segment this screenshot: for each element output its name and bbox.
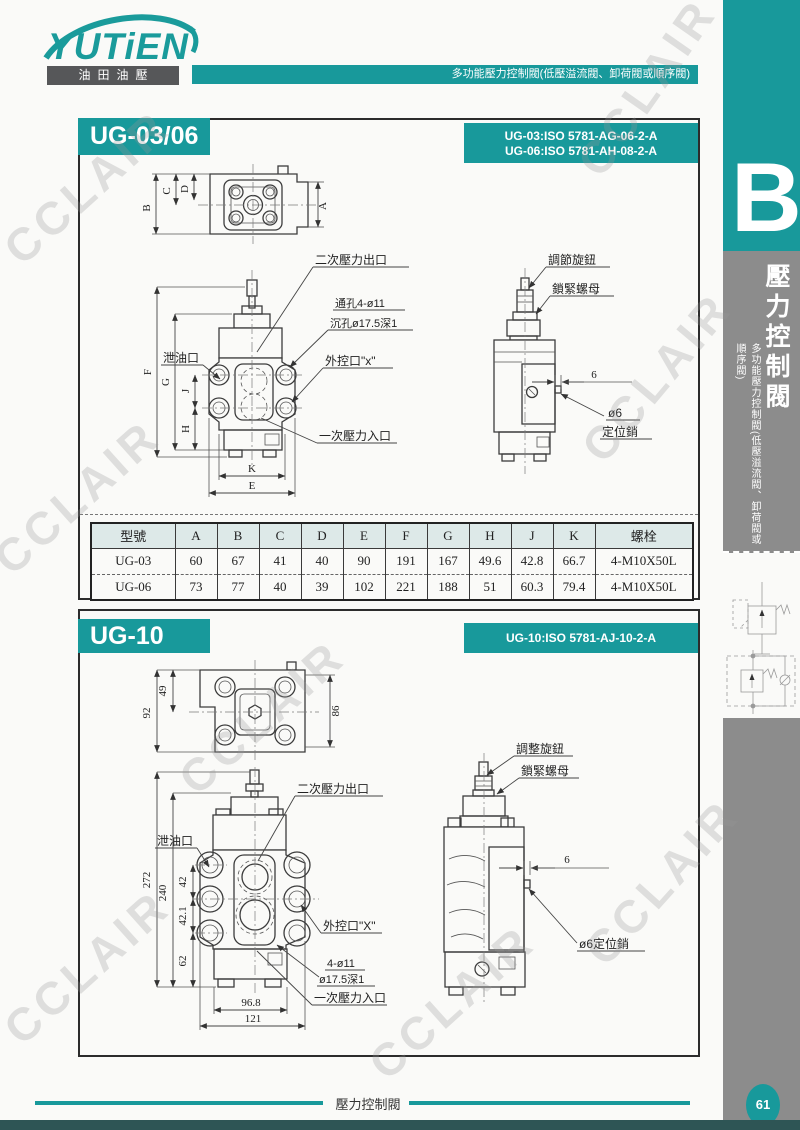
dim-240: 240 — [157, 884, 169, 901]
cell: 188 — [427, 574, 469, 600]
dim-pin-offset: 6 — [591, 369, 597, 381]
brand-logo: YUTiEN — [48, 26, 189, 68]
label-locating-pin: ø6定位銷 — [579, 936, 629, 951]
iso-code-box-1: UG-03:ISO 5781-AG-06-2-A UG-06:ISO 5781-… — [464, 123, 698, 163]
col-header: G — [427, 523, 469, 548]
label-primary-inlet: 一次壓力入口 — [319, 429, 391, 443]
cell: 51 — [469, 574, 511, 600]
dim-272: 272 — [141, 872, 153, 889]
sidebar-title-vertical: 壓力控制閥 — [758, 263, 794, 413]
cell: 60.3 — [511, 574, 553, 600]
col-header: J — [511, 523, 553, 548]
iso-code-ug10: UG-10:ISO 5781-AJ-10-2-A — [464, 631, 698, 645]
cell: 79.4 — [553, 574, 595, 600]
dim-86: 86 — [330, 705, 342, 717]
footer-title: 壓力控制閥 — [330, 1094, 406, 1113]
label-primary-inlet: 一次壓力入口 — [314, 991, 386, 1005]
ug03-front-body — [202, 270, 305, 465]
col-header: 螺栓 — [595, 523, 693, 548]
label-pilot-port: 外控口"X" — [323, 919, 376, 933]
dimension-table: 型號 A B C D E F G H J K 螺栓 UG-03 60 67 41… — [90, 522, 694, 601]
dim-pin-offset: 6 — [564, 854, 570, 866]
dim-62: 62 — [177, 956, 189, 967]
dim-A: A — [317, 202, 329, 210]
section-title-ug-10: UG-10 — [78, 619, 210, 653]
cell: 40 — [259, 574, 301, 600]
cell: 39 — [301, 574, 343, 600]
sidebar-filler-gray — [723, 718, 800, 1130]
sidebar-section-letter: B — [731, 148, 800, 246]
col-header: F — [385, 523, 427, 548]
page-banner: 多功能壓力控制閥(低壓溢流閥、卸荷閥或順序閥) — [192, 65, 698, 84]
cell: 77 — [217, 574, 259, 600]
drawing-ug03-front-view: 二次壓力出口 通孔4-ø11 沉孔ø17.5深1 外控口"x" 泄油口 一次壓力… — [147, 250, 462, 515]
cell: UG-06 — [91, 574, 175, 600]
drawing-ug10-side-view: 調整旋鈕 鎖緊螺母 6 ø6定位銷 — [427, 737, 692, 1027]
hydraulic-symbol-pilot-valve-icon — [723, 648, 799, 716]
label-counterbore: ø17.5深1 — [319, 973, 364, 986]
ug03-top-body — [198, 164, 318, 244]
table-row-ug03: UG-03 60 67 41 40 90 191 167 49.6 42.8 6… — [91, 548, 693, 574]
label-lock-nut: 鎖緊螺母 — [521, 763, 569, 778]
cell: 191 — [385, 548, 427, 574]
table-top-divider — [80, 514, 698, 515]
cell: 67 — [217, 548, 259, 574]
col-header: D — [301, 523, 343, 548]
drawing-ug10-front-view: 二次壓力出口 泄油口 外控口"X" 4-ø11 ø17.5深1 一次壓力入口 — [137, 765, 407, 1055]
label-secondary-outlet: 二次壓力出口 — [315, 253, 387, 267]
catalog-page: YUTiEN 油田油壓 多功能壓力控制閥(低壓溢流閥、卸荷閥或順序閥) B 壓力… — [0, 0, 800, 1130]
col-header: 型號 — [91, 523, 175, 548]
label-pin-diameter: ø6 — [608, 406, 622, 420]
sidebar-tab-gray: 壓力控制閥 多功能壓力控制閥(低壓溢流閥、卸荷閥或順序閥) — [723, 251, 800, 553]
cell: 42.8 — [511, 548, 553, 574]
col-header: B — [217, 523, 259, 548]
section-title-ug-03-06: UG-03/06 — [78, 118, 210, 155]
cell: 60 — [175, 548, 217, 574]
dim-B: B — [141, 204, 153, 211]
label-lock-nut: 鎖緊螺母 — [552, 281, 600, 296]
dim-92: 92 — [141, 708, 153, 719]
cell: 102 — [343, 574, 385, 600]
col-header: K — [553, 523, 595, 548]
iso-code-box-2: UG-10:ISO 5781-AJ-10-2-A — [464, 623, 698, 653]
ug10-side-body — [444, 753, 530, 1005]
footer-rule-right — [409, 1101, 690, 1105]
dim-42: 42 — [177, 877, 189, 888]
dim-121: 121 — [245, 1013, 262, 1025]
dim-F: F — [142, 369, 154, 375]
col-header: H — [469, 523, 511, 548]
label-adjust-knob: 調整旋鈕 — [516, 741, 564, 756]
sidebar-subtitle-vertical: 多功能壓力控制閥(低壓溢流閥、卸荷閥或順序閥) — [732, 343, 762, 548]
dim-49: 49 — [157, 685, 169, 697]
dim-D: D — [179, 185, 191, 193]
section-ug-10: UG-10 UG-10:ISO 5781-AJ-10-2-A — [78, 609, 700, 1057]
drawing-ug10-top-view: 92 49 86 — [137, 657, 367, 782]
dim-J: J — [180, 388, 192, 393]
iso-code-ug06: UG-06:ISO 5781-AH-08-2-A — [464, 144, 698, 158]
dim-K: K — [248, 463, 256, 475]
label-locating-pin: 定位銷 — [602, 424, 638, 439]
cell: UG-03 — [91, 548, 175, 574]
dim-C: C — [161, 187, 173, 194]
table-header-row: 型號 A B C D E F G H J K 螺栓 — [91, 523, 693, 548]
cell: 66.7 — [553, 548, 595, 574]
col-header: A — [175, 523, 217, 548]
label-drain-port: 泄油口 — [157, 834, 193, 848]
label-secondary-outlet: 二次壓力出口 — [297, 782, 369, 796]
label-adjust-knob: 調節旋鈕 — [548, 252, 596, 267]
dim-H: H — [180, 425, 192, 433]
ug10-top-body — [189, 660, 319, 762]
iso-code-ug03: UG-03:ISO 5781-AG-06-2-A — [464, 129, 698, 143]
cell: 167 — [427, 548, 469, 574]
dim-G: G — [160, 378, 172, 386]
cell: 41 — [259, 548, 301, 574]
cell: 40 — [301, 548, 343, 574]
bottom-strip — [0, 1120, 800, 1130]
drawing-ug03-side-view: 調節旋鈕 鎖緊螺母 6 ø6 定位銷 — [482, 252, 702, 492]
table-row-ug06: UG-06 73 77 40 39 102 221 188 51 60.3 79… — [91, 574, 693, 600]
dim-E: E — [249, 480, 256, 492]
dim-42-1: 42.1 — [177, 906, 189, 925]
col-header: C — [259, 523, 301, 548]
label-drain-port: 泄油口 — [163, 351, 199, 365]
ug10-front-body — [192, 767, 319, 995]
cell: 4-M10X50L — [595, 548, 693, 574]
section-ug-03-06: UG-03/06 UG-03:ISO 5781-AG-06-2-A UG-06:… — [78, 118, 700, 600]
label-pilot-port: 外控口"x" — [325, 354, 376, 368]
label-through-hole: 通孔4-ø11 — [335, 297, 385, 310]
sidebar-tab-teal: B — [723, 0, 800, 251]
cell: 221 — [385, 574, 427, 600]
cell: 73 — [175, 574, 217, 600]
dim-96-8: 96.8 — [241, 997, 261, 1009]
ug03-side-body — [494, 268, 561, 474]
footer-rule-left — [35, 1101, 323, 1105]
cell: 4-M10X50L — [595, 574, 693, 600]
label-counterbore: 沉孔ø17.5深1 — [330, 317, 397, 330]
label-bolt-holes: 4-ø11 — [327, 958, 355, 970]
brand-logo-subtitle: 油田油壓 — [47, 66, 179, 85]
cell: 49.6 — [469, 548, 511, 574]
cell: 90 — [343, 548, 385, 574]
col-header: E — [343, 523, 385, 548]
